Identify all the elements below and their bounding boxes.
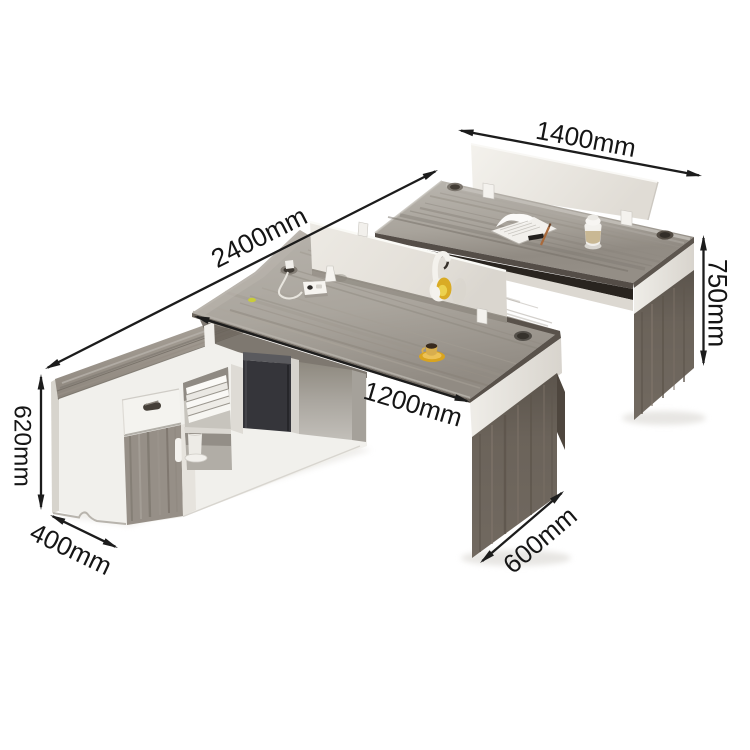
svg-text:620mm: 620mm [8,405,35,487]
svg-text:750mm: 750mm [703,259,733,347]
